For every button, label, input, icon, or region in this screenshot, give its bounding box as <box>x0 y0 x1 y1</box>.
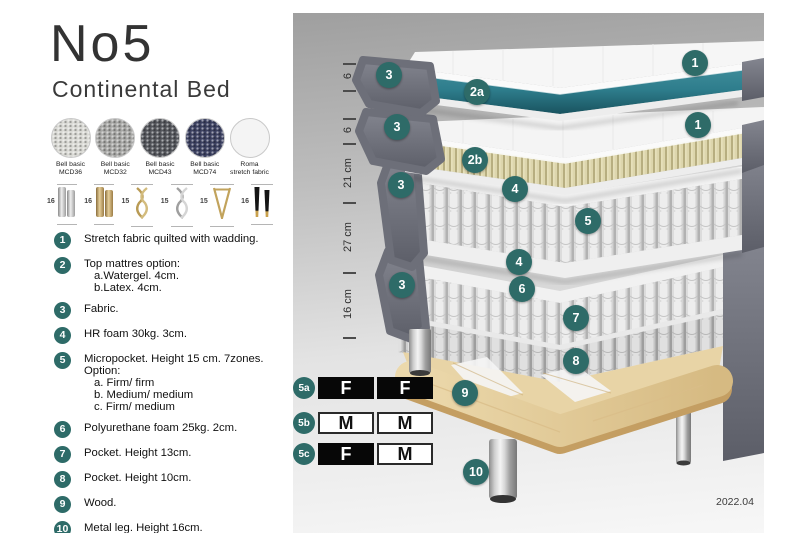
fabric-label: Romastretch fabric <box>228 161 271 177</box>
spec-item-2: 2 Top mattres option: a.Watergel. 4cm. b… <box>54 258 288 295</box>
spec-subtext: c. Firm/ medium <box>84 401 288 413</box>
version-date: 2022.04 <box>716 496 754 508</box>
firmness-badge-5c: 5c <box>293 443 315 465</box>
spec-item-8: 8 Pocket. Height 10cm. <box>54 472 288 489</box>
spec-subtext: b. Medium/ medium <box>84 389 288 401</box>
spec-item-1: 1 Stretch fabric quilted with wadding. <box>54 233 288 250</box>
spec-text: HR foam 30kg. 3cm. <box>84 328 288 340</box>
spec-text: Polyurethane foam 25kg. 2cm. <box>84 422 288 434</box>
leg-height-label: 15 <box>121 198 129 205</box>
leg-option-twist-silver: 15 <box>161 184 193 227</box>
callout-stretch-fabric-lower: 1 <box>685 112 711 138</box>
callout-micropocket: 5 <box>575 208 601 234</box>
callout-polyurethane-foam: 6 <box>509 276 535 302</box>
spec-number-badge: 1 <box>54 232 71 249</box>
callout-fabric-base: 3 <box>389 272 415 298</box>
spec-text: Metal leg. Height 16cm. <box>84 522 288 533</box>
base-fabric-right <box>723 239 764 461</box>
leg-height-label: 16 <box>84 198 92 205</box>
spec-number-badge: 3 <box>54 302 71 319</box>
dimension-label-leg: 16 cm <box>342 274 356 334</box>
metal-leg-left <box>409 329 431 373</box>
spec-item-9: 9 Wood. <box>54 497 288 514</box>
callout-metal-leg: 10 <box>463 459 489 485</box>
spec-item-3: 3 Fabric. <box>54 303 288 320</box>
firmness-cell: M <box>377 412 433 434</box>
topper-fabric-right <box>742 120 764 173</box>
twist-gold-leg-icon <box>131 184 153 227</box>
spec-number-badge: 7 <box>54 446 71 463</box>
callout-stretch-fabric-top: 1 <box>682 50 708 76</box>
spec-list: 1 Stretch fabric quilted with wadding. 2… <box>54 233 288 533</box>
metal-leg-front <box>489 439 517 499</box>
fabric-swatch-mcd36 <box>51 118 91 158</box>
callout-watergel: 2a <box>464 79 490 105</box>
leg-height-label: 16 <box>47 198 55 205</box>
spec-number-badge: 10 <box>54 521 71 533</box>
spec-text: Wood. <box>84 497 288 509</box>
spec-subtext: a. Firm/ firm <box>84 377 288 389</box>
diagram-pane: 6 6 21 cm 27 cm 16 cm 1 3 2a 3 2b 1 4 5 … <box>293 13 764 533</box>
callout-hr-foam-bottom: 4 <box>506 249 532 275</box>
spec-text: Top mattres option: <box>84 258 288 270</box>
firmness-badge-5b: 5b <box>293 412 315 434</box>
fabric-swatch-row: Bell basicMCD36 Bell basicMCD32 Bell bas… <box>49 118 271 177</box>
fabric-swatch-mcd32 <box>95 118 135 158</box>
spec-text: Pocket. Height 10cm. <box>84 472 288 484</box>
firmness-row-5a: 5a F F <box>293 377 436 399</box>
spec-text: Pocket. Height 13cm. <box>84 447 288 459</box>
leg-height-label: 16 <box>241 198 249 205</box>
callout-pocket-10: 8 <box>563 348 589 374</box>
dimension-label-base: 27 cm <box>342 207 356 267</box>
fabric-swatch-mcd74 <box>185 118 225 158</box>
fabric-label: Bell basicMCD43 <box>139 161 182 177</box>
fabric-label: Bell basicMCD32 <box>94 161 137 177</box>
callout-hr-foam-top: 4 <box>502 176 528 202</box>
leg-option-tapered-black: 16 <box>241 184 273 225</box>
spec-item-7: 7 Pocket. Height 13cm. <box>54 447 288 464</box>
spec-subtext: b.Latex. 4cm. <box>84 282 288 294</box>
spec-text: Micropocket. Height 15 cm. 7zones. Optio… <box>84 353 288 377</box>
leg-option-cylinder-silver: 16 <box>47 184 77 225</box>
leg-option-twist-gold: 15 <box>121 184 153 227</box>
spec-text: Fabric. <box>84 303 288 315</box>
cylinder-gold-leg-icon <box>94 184 114 225</box>
spec-item-6: 6 Polyurethane foam 25kg. 2cm. <box>54 422 288 439</box>
spec-item-5: 5 Micropocket. Height 15 cm. 7zones. Opt… <box>54 353 288 414</box>
callout-fabric-topper-a: 3 <box>376 62 402 88</box>
product-sheet: No5 Continental Bed Bell basicMCD36 Bell… <box>0 0 800 533</box>
callout-fabric-topper-b: 3 <box>384 114 410 140</box>
fabric-option: Romastretch fabric <box>228 118 271 177</box>
cylinder-silver-leg-icon <box>57 184 77 225</box>
firmness-cell: F <box>318 443 374 465</box>
dimension-label-topper-a: 6 <box>342 46 356 106</box>
callout-pocket-13: 7 <box>563 305 589 331</box>
tapered-black-gold-leg-icon <box>251 184 273 225</box>
spec-number-badge: 5 <box>54 352 71 369</box>
fabric-option: Bell basicMCD74 <box>183 118 226 177</box>
spec-number-badge: 2 <box>54 257 71 274</box>
leg-option-hairpin-gold: 15 <box>200 184 234 227</box>
spec-text: Stretch fabric quilted with wadding. <box>84 233 288 245</box>
firmness-cell: F <box>318 377 374 399</box>
spec-item-10: 10 Metal leg. Height 16cm. <box>54 522 288 533</box>
spec-number-badge: 4 <box>54 327 71 344</box>
firmness-cell: M <box>377 443 433 465</box>
twist-silver-leg-icon <box>171 184 193 227</box>
fabric-option: Bell basicMCD43 <box>139 118 182 177</box>
callout-fabric-mattress: 3 <box>388 172 414 198</box>
fabric-label: Bell basicMCD36 <box>49 161 92 177</box>
spec-number-badge: 8 <box>54 471 71 488</box>
spec-number-badge: 6 <box>54 421 71 438</box>
fabric-swatch-mcd43 <box>140 118 180 158</box>
leg-option-cylinder-gold: 16 <box>84 184 114 225</box>
firmness-row-5b: 5b M M <box>293 412 436 434</box>
firmness-cell: M <box>318 412 374 434</box>
leg-height-label: 15 <box>161 198 169 205</box>
info-pane: No5 Continental Bed Bell basicMCD36 Bell… <box>0 0 293 533</box>
spec-subtext: a.Watergel. 4cm. <box>84 270 288 282</box>
callout-wood: 9 <box>452 380 478 406</box>
fabric-option: Bell basicMCD32 <box>94 118 137 177</box>
spec-number-badge: 9 <box>54 496 71 513</box>
spec-item-4: 4 HR foam 30kg. 3cm. <box>54 328 288 345</box>
firmness-badge-5a: 5a <box>293 377 315 399</box>
dimension-label-mattress: 21 cm <box>342 143 356 203</box>
firmness-row-5c: 5c F M <box>293 443 436 465</box>
product-title: No5 <box>50 14 154 74</box>
fabric-option: Bell basicMCD36 <box>49 118 92 177</box>
leg-height-label: 15 <box>200 198 208 205</box>
callout-latex: 2b <box>462 147 488 173</box>
fabric-label: Bell basicMCD74 <box>183 161 226 177</box>
firmness-cell: F <box>377 377 433 399</box>
leg-options-row: 16 16 15 15 15 <box>47 184 273 227</box>
topper-fabric-right <box>742 58 764 101</box>
product-subtitle: Continental Bed <box>52 76 231 103</box>
fabric-swatch-roma <box>230 118 270 158</box>
ruler-tick <box>343 337 356 339</box>
hairpin-gold-leg-icon <box>210 184 234 227</box>
